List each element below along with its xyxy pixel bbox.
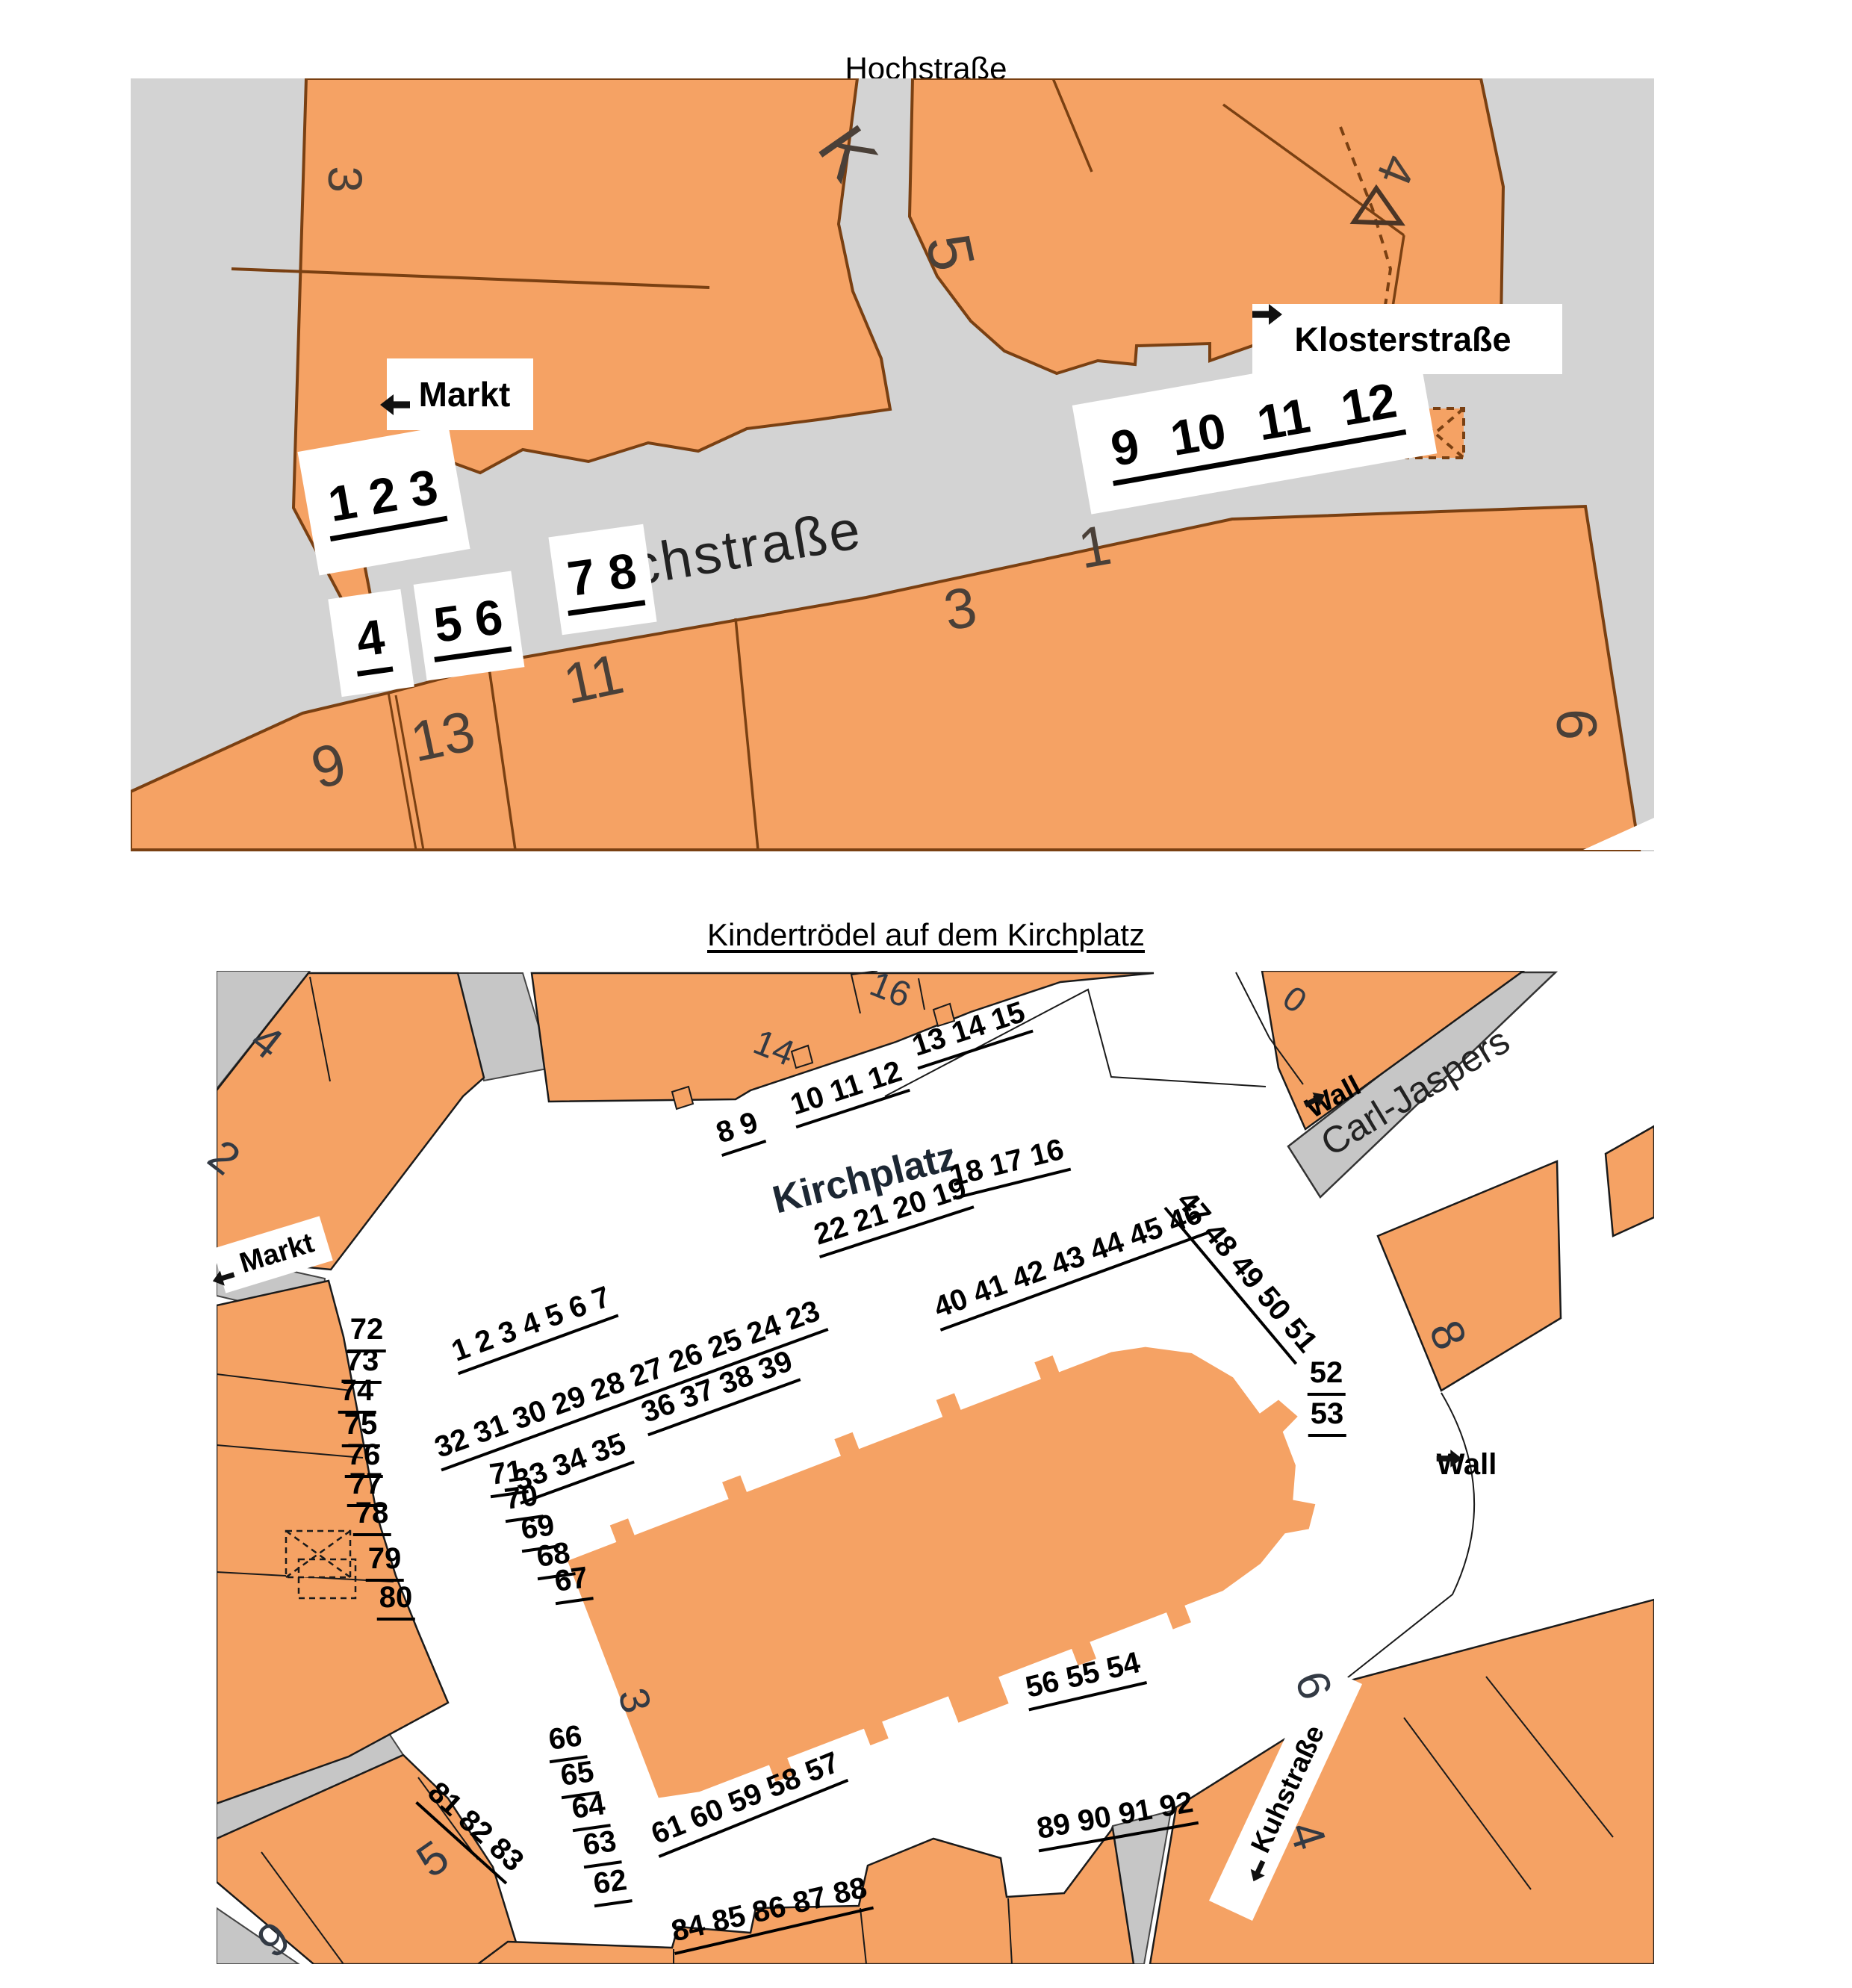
- stall-box-1-2-3: 1 2 3: [297, 425, 470, 575]
- stall-numbers: 62: [589, 1863, 633, 1908]
- parcel-number: 6: [1547, 709, 1604, 740]
- stall-box-4: 4: [328, 589, 414, 697]
- parcel-number: 13: [406, 703, 480, 771]
- stall-numbers: 53: [1308, 1397, 1346, 1437]
- kirchplatz-map: Kirchplatz Carl-Jaspers 8 9 10 11 12 13 …: [217, 971, 1654, 1964]
- stall-numbers: 79: [366, 1541, 404, 1582]
- sign-wall-right: Wall: [1437, 1450, 1506, 1479]
- stall-numbers: 4: [349, 609, 394, 677]
- stall-numbers: 78: [353, 1496, 391, 1536]
- sign-markt: Markt: [387, 358, 533, 430]
- stall-numbers: 80: [377, 1580, 415, 1621]
- parcel-number: 3: [321, 166, 369, 193]
- stall-numbers: 7 8: [560, 543, 645, 616]
- page: { "doc": { "title_top": "Hochstraße", "t…: [0, 0, 1852, 1988]
- sign-markt-label: Markt: [419, 377, 511, 411]
- sign-klosterstrasse-label: Klosterstraße: [1294, 323, 1511, 356]
- stall-box-5-6: 5 6: [414, 571, 525, 680]
- stall-numbers: 63: [579, 1824, 622, 1869]
- stall-numbers: 52: [1308, 1355, 1346, 1396]
- stall-numbers: 67: [550, 1560, 594, 1606]
- stall-numbers: 5 6: [426, 589, 512, 662]
- parcel-number: 11: [559, 646, 629, 714]
- page-title-kirchplatz: Kindertrödel auf dem Kirchplatz: [0, 917, 1852, 953]
- stall-box-7-8: 7 8: [548, 524, 656, 636]
- hochstrasse-map: Hochstraße 3 K 5 4 7 9 13 11 3 1 6 1 2 3…: [131, 78, 1654, 851]
- sign-klosterstrasse: Klosterstraße: [1252, 304, 1562, 374]
- stall-numbers: 1 2 3: [320, 459, 448, 541]
